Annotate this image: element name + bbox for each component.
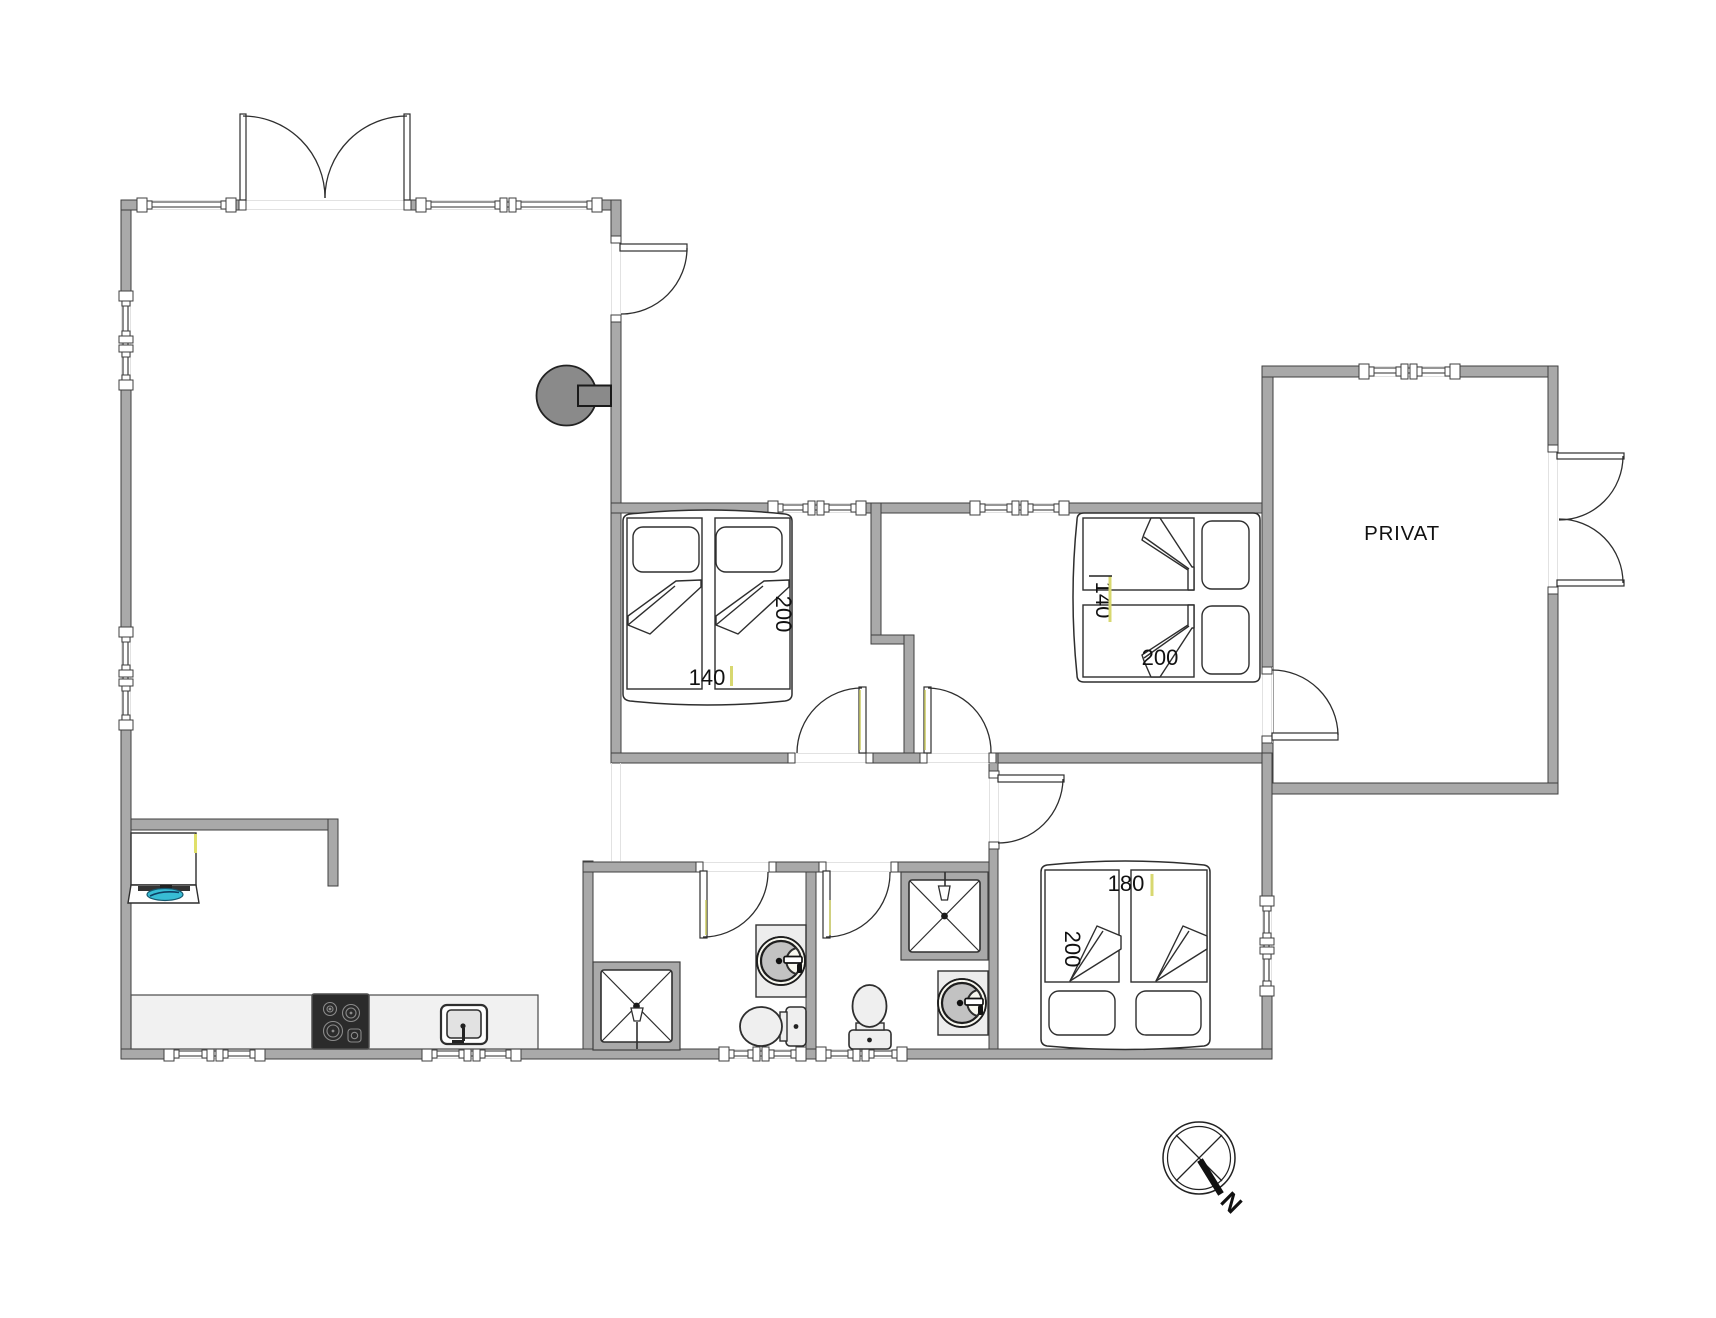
svg-text:140: 140: [1091, 582, 1116, 619]
svg-text:200: 200: [1060, 931, 1085, 968]
svg-text:PRIVAT: PRIVAT: [1364, 522, 1440, 545]
svg-text:140: 140: [689, 665, 726, 690]
svg-text:200: 200: [1142, 645, 1179, 670]
svg-text:200: 200: [771, 596, 796, 633]
svg-text:180: 180: [1108, 871, 1145, 896]
